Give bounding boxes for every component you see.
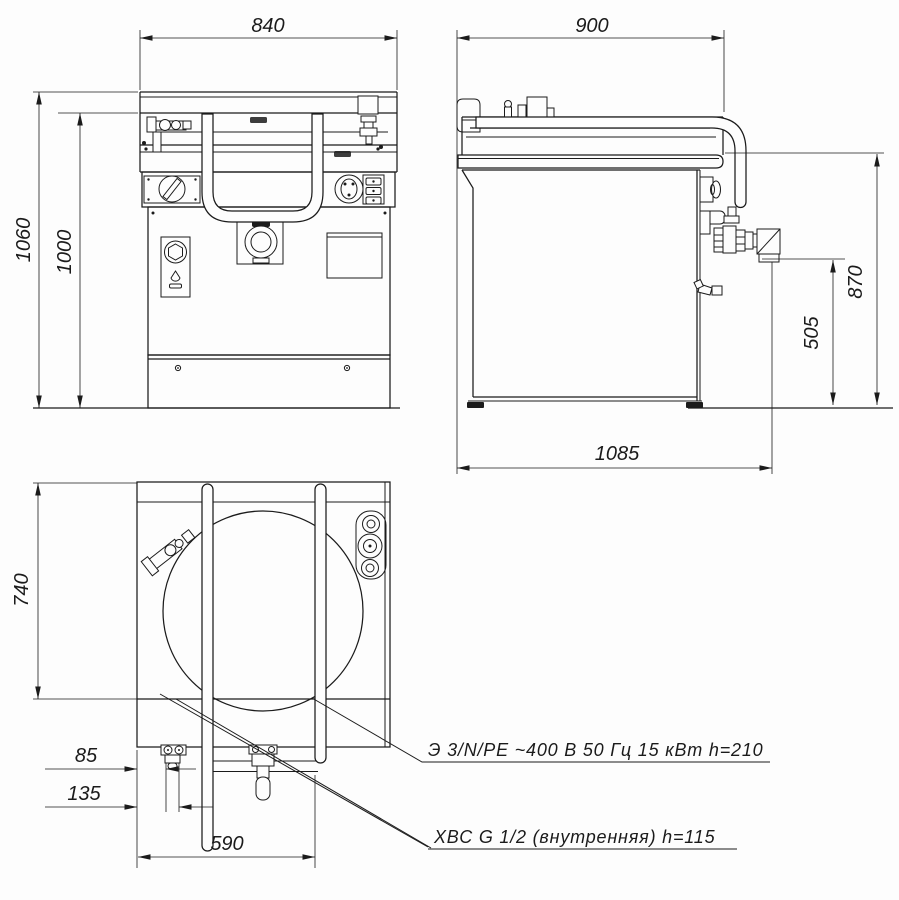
dim-label-1000: 1000 (54, 230, 76, 275)
dim-side-overall-depth: 1085 (457, 262, 772, 474)
front-indicator-panel (363, 175, 384, 204)
top-inlet-valve (141, 527, 197, 576)
brand-mark (334, 151, 351, 157)
dim-front-body-height: 1000 (54, 113, 138, 408)
dim-top-inlet-offset-2: 135 (45, 783, 213, 807)
dim-label-505: 505 (801, 315, 823, 349)
side-body (462, 170, 703, 408)
top-control-knobs (356, 511, 386, 579)
front-access-panel (161, 237, 190, 297)
technical-drawing-page: 840 1060 1000 (0, 0, 899, 900)
front-power-socket (335, 175, 363, 203)
dim-label-135: 135 (67, 783, 101, 805)
top-view (137, 482, 390, 851)
front-base (148, 355, 390, 408)
dim-top-depth: 740 (11, 483, 137, 699)
note-electrical-text: Э 3/N/PE ~400 В 50 Гц 15 кВт h=210 (428, 740, 763, 760)
dim-label-740: 740 (11, 573, 33, 606)
side-drain-cock (694, 280, 722, 295)
side-probe-boss (700, 177, 721, 202)
front-handle (202, 114, 323, 222)
front-view (33, 92, 400, 408)
dim-label-85: 85 (75, 745, 98, 767)
dim-front-width: 840 (140, 15, 397, 90)
dim-label-1060: 1060 (13, 218, 35, 263)
dim-label-870: 870 (845, 265, 867, 298)
note-electrical: Э 3/N/PE ~400 В 50 Гц 15 кВт h=210 (312, 698, 770, 762)
front-knob (144, 176, 200, 203)
front-safety-valve (358, 96, 383, 149)
side-worktop (458, 155, 723, 168)
dim-label-840: 840 (251, 15, 284, 37)
dim-label-900: 900 (575, 15, 608, 37)
technical-drawing: 840 1060 1000 (0, 0, 899, 900)
front-body (148, 207, 390, 355)
front-drain-tap (237, 217, 283, 264)
top-pan-circle (163, 511, 363, 711)
brand-mark (250, 117, 267, 123)
dim-side-width: 900 (457, 15, 724, 474)
dim-label-1085: 1085 (595, 443, 640, 465)
front-name-plate (327, 233, 382, 278)
dim-label-590: 590 (210, 833, 243, 855)
note-water-text: ХВС G 1/2 (внутренняя) h=115 (433, 827, 716, 847)
top-body (137, 482, 390, 747)
front-control-panel (142, 172, 395, 207)
dim-side-worktop-height: 870 (725, 153, 884, 405)
front-inlet-tap (142, 117, 191, 152)
top-water-fitting (161, 745, 186, 812)
dim-side-drain-height: 505 (762, 259, 845, 405)
side-view (457, 97, 893, 408)
